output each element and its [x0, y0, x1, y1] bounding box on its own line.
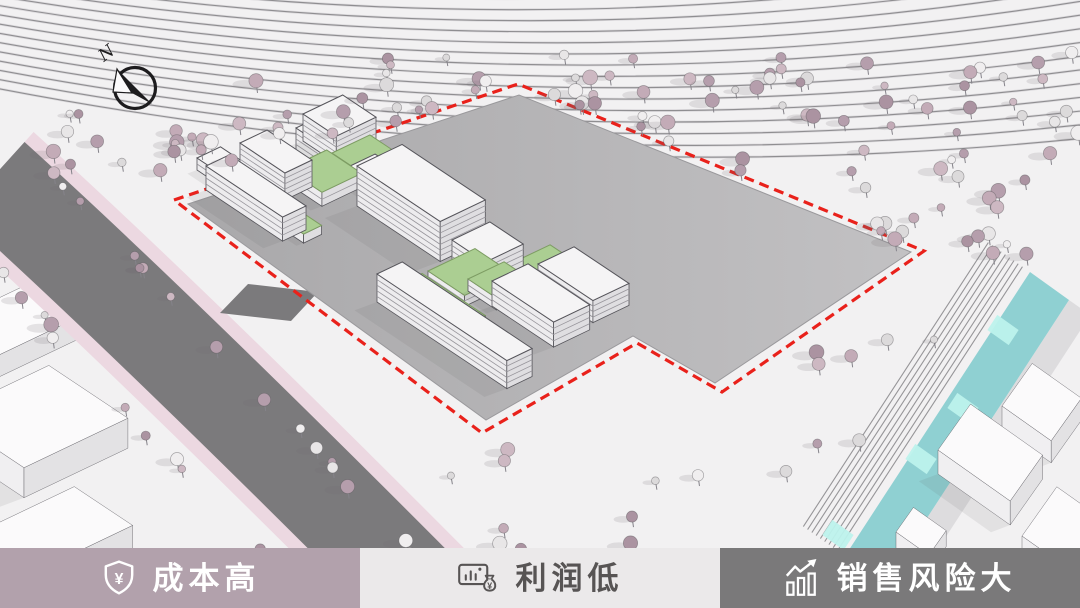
yen-glyph: ¥ [487, 581, 492, 591]
caption-cost-label: 成本高 [153, 563, 261, 594]
caption-profit: ¥ 利润低 [360, 548, 720, 608]
rising-bars-icon [784, 559, 822, 597]
caption-profit-label: 利润低 [516, 563, 624, 594]
shield-yen-icon: ¥ [100, 559, 138, 597]
yen-glyph: ¥ [114, 571, 123, 588]
bottom-caption-bar: ¥ 成本高 ¥ 利润低 销售风险大 [0, 548, 1080, 608]
site-plan-rendering: N ¥ 成本高 ¥ 利润低 [0, 0, 1080, 608]
site-plan-canvas: N [0, 0, 1080, 608]
caption-risk-label: 销售风险大 [837, 563, 1017, 594]
caption-cost: ¥ 成本高 [0, 548, 360, 608]
moneybag-chart-icon: ¥ [457, 559, 501, 597]
caption-risk: 销售风险大 [720, 548, 1080, 608]
